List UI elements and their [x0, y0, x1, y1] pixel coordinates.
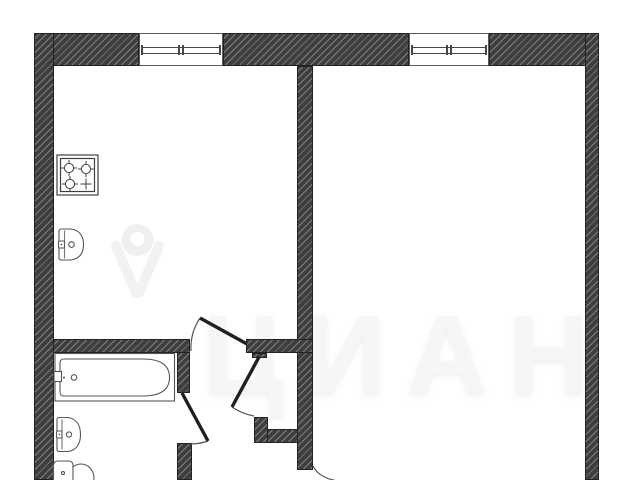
wall-kitchen-bath-a: [53, 339, 190, 353]
wall-hinge-stub-top: [252, 353, 267, 358]
wall-kitchen-bath-b: [246, 339, 313, 353]
wall-bath-door-stub: [177, 352, 190, 393]
wall-hall-bar: [267, 429, 298, 443]
wall-bath-lower-stub: [177, 443, 192, 480]
window-icon: [139, 33, 223, 66]
window-pane: [141, 47, 221, 54]
wall-top-middle: [223, 33, 409, 66]
floor-plan: ЦИАН: [0, 0, 632, 480]
window-icon: [409, 33, 489, 66]
wall-hall-stub: [254, 417, 268, 443]
wall-right: [585, 33, 599, 480]
wall-top-right: [489, 33, 599, 66]
wall-middle-vertical: [297, 66, 313, 470]
window-pane: [411, 47, 487, 54]
wall-left: [34, 33, 54, 480]
